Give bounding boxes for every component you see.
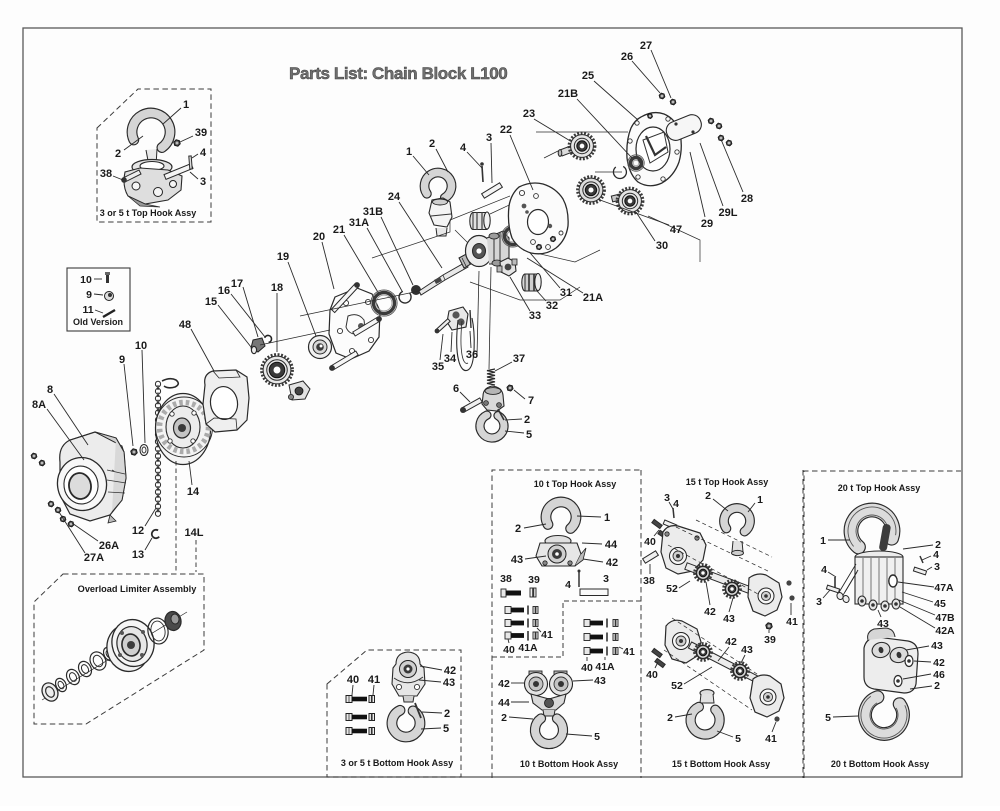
svg-text:28: 28 xyxy=(741,193,753,205)
svg-text:7: 7 xyxy=(528,395,534,407)
svg-text:33: 33 xyxy=(529,310,541,322)
svg-text:3: 3 xyxy=(816,596,822,608)
svg-text:3 or 5 t Bottom Hook Assy: 3 or 5 t Bottom Hook Assy xyxy=(341,758,453,768)
svg-text:29: 29 xyxy=(701,218,713,230)
svg-text:11: 11 xyxy=(82,304,93,316)
svg-text:41A: 41A xyxy=(595,661,615,673)
svg-text:22: 22 xyxy=(500,124,512,136)
svg-text:25: 25 xyxy=(582,70,594,82)
svg-text:38: 38 xyxy=(500,573,512,585)
svg-text:42: 42 xyxy=(444,665,456,677)
svg-text:2: 2 xyxy=(444,708,450,720)
svg-text:3: 3 xyxy=(200,176,206,188)
svg-text:14: 14 xyxy=(187,486,200,498)
svg-text:42: 42 xyxy=(606,557,618,569)
svg-text:15 t Top Hook Assy: 15 t Top Hook Assy xyxy=(686,477,769,487)
svg-text:43: 43 xyxy=(511,554,523,566)
svg-text:17: 17 xyxy=(231,278,243,290)
svg-text:4: 4 xyxy=(565,579,571,591)
svg-text:3 or 5 t Top Hook Assy: 3 or 5 t Top Hook Assy xyxy=(100,208,197,218)
svg-text:9: 9 xyxy=(86,289,92,301)
svg-text:41: 41 xyxy=(765,733,777,745)
svg-text:31: 31 xyxy=(560,287,572,299)
svg-text:42: 42 xyxy=(725,636,737,648)
svg-text:52: 52 xyxy=(671,680,683,692)
svg-text:42A: 42A xyxy=(935,625,955,637)
svg-text:42: 42 xyxy=(933,657,945,669)
svg-text:52: 52 xyxy=(666,583,678,595)
svg-text:43: 43 xyxy=(723,613,735,625)
svg-text:1: 1 xyxy=(604,512,610,524)
svg-text:1: 1 xyxy=(183,99,189,111)
svg-text:15: 15 xyxy=(205,296,217,308)
svg-text:4: 4 xyxy=(460,142,467,154)
svg-text:39: 39 xyxy=(528,574,540,586)
svg-text:40: 40 xyxy=(646,669,658,681)
svg-text:2: 2 xyxy=(501,712,507,724)
svg-text:3: 3 xyxy=(486,132,492,144)
svg-text:15 t Bottom Hook Assy: 15 t Bottom Hook Assy xyxy=(672,759,770,769)
svg-text:47A: 47A xyxy=(934,582,954,594)
svg-text:34: 34 xyxy=(444,353,457,365)
svg-text:41: 41 xyxy=(368,674,380,686)
svg-text:Old Version: Old Version xyxy=(73,317,123,327)
svg-text:42: 42 xyxy=(498,678,510,690)
svg-text:41: 41 xyxy=(623,646,635,658)
svg-text:10: 10 xyxy=(80,274,92,286)
svg-text:47: 47 xyxy=(670,224,682,236)
svg-text:19: 19 xyxy=(277,251,289,263)
svg-text:4: 4 xyxy=(673,498,679,510)
svg-text:43: 43 xyxy=(443,677,455,689)
svg-text:2: 2 xyxy=(115,148,121,160)
svg-text:1: 1 xyxy=(757,494,763,506)
svg-text:4: 4 xyxy=(933,549,939,561)
svg-text:26A: 26A xyxy=(99,540,119,552)
svg-text:23: 23 xyxy=(523,108,535,120)
svg-text:18: 18 xyxy=(271,282,283,294)
svg-text:Parts List: Chain Block L100: Parts List: Chain Block L100 xyxy=(289,64,507,83)
svg-text:13: 13 xyxy=(132,549,144,561)
svg-text:43: 43 xyxy=(594,675,606,687)
svg-text:2: 2 xyxy=(705,490,711,502)
svg-text:43: 43 xyxy=(931,640,943,652)
svg-text:31A: 31A xyxy=(349,217,369,229)
svg-text:43: 43 xyxy=(741,644,753,656)
svg-text:21B: 21B xyxy=(558,88,578,100)
svg-text:30: 30 xyxy=(656,240,668,252)
svg-text:8: 8 xyxy=(47,384,53,396)
svg-text:16: 16 xyxy=(218,285,230,297)
svg-text:31B: 31B xyxy=(363,206,383,218)
svg-text:24: 24 xyxy=(388,191,401,203)
svg-text:21: 21 xyxy=(333,224,345,236)
svg-text:26: 26 xyxy=(621,51,633,63)
svg-text:5: 5 xyxy=(735,733,741,745)
svg-text:4: 4 xyxy=(200,147,207,159)
svg-text:2: 2 xyxy=(515,523,521,535)
svg-text:39: 39 xyxy=(764,634,776,646)
svg-text:42: 42 xyxy=(704,606,716,618)
svg-text:20 t Bottom Hook Assy: 20 t Bottom Hook Assy xyxy=(831,759,929,769)
svg-text:8A: 8A xyxy=(32,399,46,411)
svg-text:10 t Bottom Hook Assy: 10 t Bottom Hook Assy xyxy=(520,759,618,769)
svg-text:14L: 14L xyxy=(185,527,204,539)
svg-text:44: 44 xyxy=(498,697,510,709)
svg-text:12: 12 xyxy=(132,525,144,537)
svg-text:Overload Limiter Assembly: Overload Limiter Assembly xyxy=(78,584,198,594)
svg-text:3: 3 xyxy=(603,573,609,585)
svg-text:2: 2 xyxy=(667,712,673,724)
svg-text:21A: 21A xyxy=(583,292,603,304)
svg-text:2: 2 xyxy=(934,680,940,692)
svg-text:27: 27 xyxy=(640,40,652,52)
svg-text:27A: 27A xyxy=(84,552,104,564)
svg-text:6: 6 xyxy=(453,383,459,395)
svg-text:38: 38 xyxy=(100,168,112,180)
svg-text:45: 45 xyxy=(934,598,946,610)
svg-text:37: 37 xyxy=(513,353,525,365)
svg-text:41A: 41A xyxy=(518,642,538,654)
svg-text:20 t Top Hook Assy: 20 t Top Hook Assy xyxy=(838,483,921,493)
svg-text:41: 41 xyxy=(786,616,798,628)
svg-text:38: 38 xyxy=(643,575,655,587)
svg-text:2: 2 xyxy=(524,414,530,426)
svg-text:5: 5 xyxy=(443,723,449,735)
svg-text:29L: 29L xyxy=(719,207,738,219)
svg-text:32: 32 xyxy=(546,300,558,312)
svg-text:20: 20 xyxy=(313,231,325,243)
svg-text:1: 1 xyxy=(820,535,826,547)
svg-text:40: 40 xyxy=(347,674,359,686)
svg-text:35: 35 xyxy=(432,361,444,373)
svg-text:4: 4 xyxy=(821,564,827,576)
svg-text:3: 3 xyxy=(934,561,940,573)
svg-text:2: 2 xyxy=(429,138,435,150)
svg-text:5: 5 xyxy=(526,429,532,441)
svg-text:10: 10 xyxy=(135,340,147,352)
svg-text:10 t Top Hook Assy: 10 t Top Hook Assy xyxy=(534,479,617,489)
svg-text:41: 41 xyxy=(541,629,553,641)
svg-text:40: 40 xyxy=(581,662,593,674)
svg-text:1: 1 xyxy=(406,146,412,158)
svg-text:5: 5 xyxy=(594,731,600,743)
svg-text:48: 48 xyxy=(179,319,191,331)
svg-text:36: 36 xyxy=(466,349,478,361)
svg-text:39: 39 xyxy=(195,127,207,139)
svg-text:40: 40 xyxy=(644,536,656,548)
svg-text:5: 5 xyxy=(825,712,831,724)
svg-text:47B: 47B xyxy=(935,612,955,624)
svg-text:44: 44 xyxy=(605,539,618,551)
svg-text:40: 40 xyxy=(503,644,515,656)
